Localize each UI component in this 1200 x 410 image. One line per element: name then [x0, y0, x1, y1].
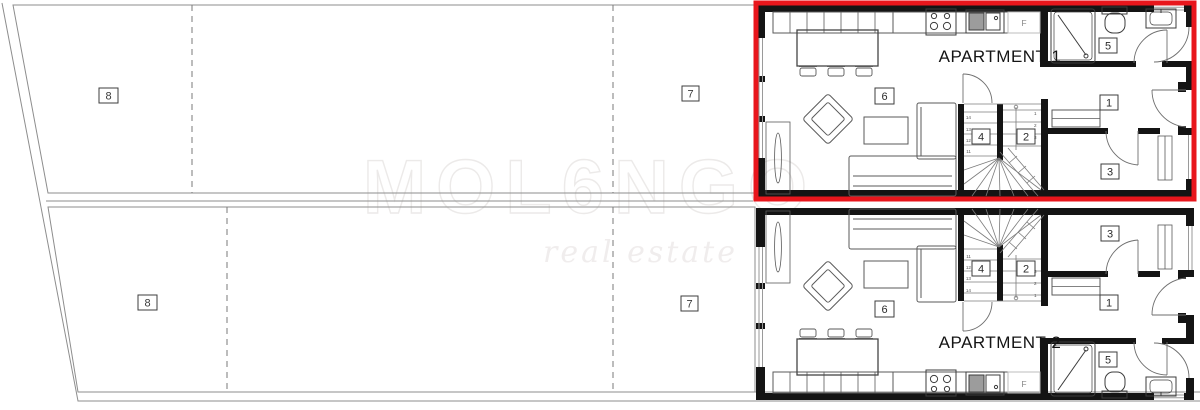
room-label-bath: 5 — [1105, 355, 1111, 367]
floor-plan-svg: MOL6NGO real estate — [0, 0, 1200, 410]
room-label-bedroom: 3 — [1107, 229, 1113, 241]
svg-text:13: 13 — [966, 276, 972, 281]
svg-text:2: 2 — [1034, 281, 1037, 286]
floor-plan-image: MOL6NGO real estate — [0, 0, 1200, 410]
fridge-label: F — [1021, 379, 1026, 389]
svg-text:2: 2 — [1034, 123, 1037, 128]
plot-label: 7 — [686, 299, 692, 311]
svg-text:14: 14 — [966, 288, 972, 293]
svg-text:1: 1 — [1034, 111, 1037, 116]
svg-text:1: 1 — [1034, 293, 1037, 298]
room-label-hall: 1 — [1106, 298, 1112, 310]
svg-text:11: 11 — [966, 254, 971, 259]
plot-label: 7 — [687, 89, 693, 101]
plot-label: 8 — [144, 298, 150, 310]
room-label-bath: 5 — [1105, 41, 1111, 53]
room-label-bedroom: 3 — [1107, 167, 1113, 179]
room-label-stair-a: 4 — [978, 132, 984, 144]
fridge-label: F — [1021, 18, 1026, 28]
svg-text:12: 12 — [966, 138, 972, 143]
apartment-1-graphics — [756, 5, 1194, 197]
apartment-2-graphics — [756, 208, 1194, 400]
apartment-1-title: APARTMENT 1 — [939, 47, 1062, 66]
room-label-hall: 1 — [1106, 98, 1112, 110]
svg-text:3: 3 — [1034, 135, 1037, 140]
plot-label: 8 — [105, 91, 111, 103]
apartment-1-highlight-outline — [756, 3, 1194, 199]
watermark-tagline: real estate — [543, 235, 738, 270]
svg-text:3: 3 — [1034, 269, 1037, 274]
room-label-stair-b: 2 — [1023, 264, 1029, 276]
room-label-stair-b: 2 — [1023, 132, 1029, 144]
room-label-living: 6 — [881, 91, 887, 103]
svg-text:12: 12 — [966, 265, 972, 270]
apartment-2-title: APARTMENT 2 — [939, 333, 1062, 352]
svg-text:14: 14 — [966, 115, 972, 120]
svg-text:11: 11 — [966, 149, 971, 154]
watermark-brand: MOL6NGO — [363, 145, 817, 230]
room-label-living: 6 — [881, 304, 887, 316]
svg-text:13: 13 — [966, 127, 972, 132]
room-label-stair-a: 4 — [978, 264, 984, 276]
